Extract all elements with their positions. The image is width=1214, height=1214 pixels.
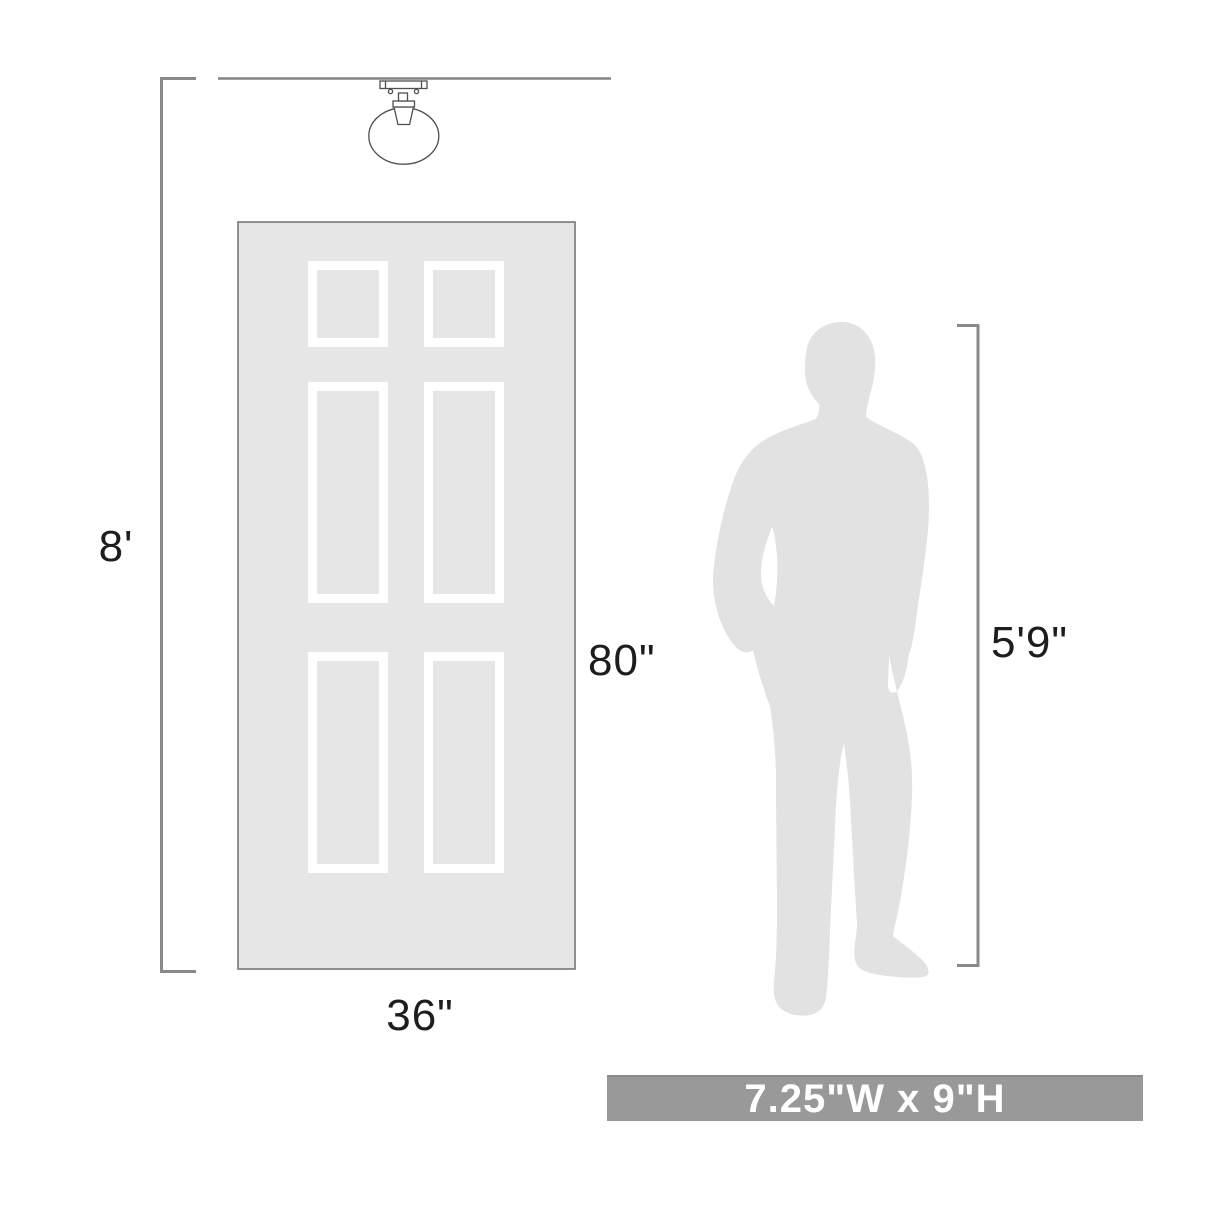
person-height-label: 5'9"	[991, 613, 1068, 673]
door-slab	[238, 222, 575, 969]
flush-mount-light-icon	[369, 81, 439, 164]
person-height-dimension-line	[957, 326, 978, 966]
dimension-diagram: 8' 80" 36" 5'9" 7.25"W x 9"H	[0, 0, 1214, 1214]
ceiling-height-label: 8'	[60, 517, 172, 577]
door-width-label: 36"	[345, 986, 495, 1046]
fixture-socket-cup	[394, 107, 414, 125]
fixture-screw-right	[414, 89, 418, 93]
diagram-artwork	[0, 0, 1214, 1214]
door-panel-inset	[317, 391, 379, 594]
product-size-banner: 7.25"W x 9"H	[607, 1075, 1143, 1121]
door-panel-inset	[317, 661, 379, 864]
fixture-screw-left	[388, 89, 392, 93]
door-panel-inset	[433, 270, 495, 338]
door-panel-inset	[433, 661, 495, 864]
person-silhouette	[713, 322, 929, 1016]
fixture-stem	[399, 93, 408, 101]
door-illustration	[238, 222, 575, 969]
door-panel-inset	[317, 270, 379, 338]
product-size-text: 7.25"W x 9"H	[744, 1077, 1005, 1122]
fixture-collar	[393, 101, 415, 107]
fixture-canopy	[380, 81, 427, 89]
door-panel-inset	[433, 391, 495, 594]
door-height-label: 80"	[588, 631, 656, 691]
